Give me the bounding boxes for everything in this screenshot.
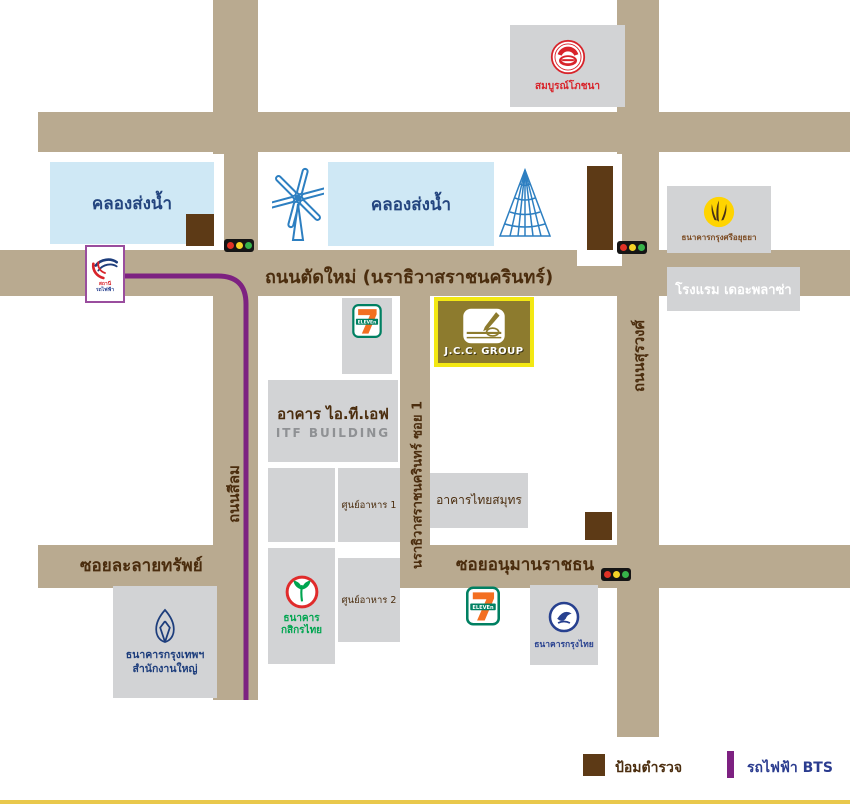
kbank-label-2: กสิกรไทย xyxy=(281,625,322,638)
thaisamut-label: อาคารไทยสมุทร xyxy=(436,491,522,510)
building-plaza-hotel: โรงแรม เดอะพลาซ่า xyxy=(667,267,800,311)
legend-bts-line-icon xyxy=(727,751,734,778)
building-foodcourt-2: ศูนย์อาหาร 2 xyxy=(338,558,400,642)
green-light-dot xyxy=(622,571,629,578)
seven-eleven-word-2: ELEVEn xyxy=(472,605,494,611)
windmill-icon xyxy=(272,160,324,246)
seven-eleven-word: ELEVEn xyxy=(358,320,376,326)
itf-label-en: ITF BUILDING xyxy=(276,426,390,440)
red-light-dot xyxy=(604,571,611,578)
traffic-light-anuman xyxy=(601,568,631,581)
legend-bts-label: รถไฟฟ้า BTS xyxy=(747,757,833,779)
foodcourt2-label: ศูนย์อาหาร 2 xyxy=(342,593,397,608)
bts-station-badge: สถานี รถไฟฟ้า xyxy=(85,245,125,303)
legend-police-box-icon xyxy=(583,754,605,776)
police-box-thaisamut xyxy=(585,512,612,540)
red-light-dot xyxy=(620,244,627,251)
traffic-light-surawong xyxy=(617,241,647,254)
bts-station-label-2: รถไฟฟ้า xyxy=(96,287,114,293)
jcc-group-label: J.C.C. GROUP xyxy=(444,346,523,357)
building-block-a xyxy=(268,468,335,542)
building-seven-eleven-north: ELEVEn xyxy=(342,298,392,374)
bbl-label-2: สำนักงานใหญ่ xyxy=(126,663,205,677)
building-itf: อาคาร ไอ.ที.เอฟ ITF BUILDING xyxy=(268,380,398,462)
foodcourt1-label: ศูนย์อาหาร 1 xyxy=(342,498,397,513)
surawong-road-label: ถนนสุรวงศ์ xyxy=(627,320,651,392)
yellow-light-dot xyxy=(236,242,243,249)
canal-center: คลองส่งน้ำ xyxy=(328,162,494,246)
building-bangkok-bank: ธนาคารกรุงเทพฯ สำนักงานใหญ่ xyxy=(113,586,217,698)
map-canvas: คลองส่งน้ำ คลองส่งน้ำ xyxy=(0,0,850,808)
somboon-label: สมบูรณ์โภชนา xyxy=(535,79,600,94)
bottom-accent-line xyxy=(0,800,850,804)
police-box-tall xyxy=(587,166,613,250)
silom-road-label: ถนนสีลม xyxy=(222,465,246,523)
building-thaisamut: อาคารไทยสมุทร xyxy=(430,473,528,528)
krungthai-logo-icon xyxy=(547,600,581,634)
jcc-logo-icon xyxy=(461,307,507,345)
soi-anuman-label: ซอยอนุมานราชธน xyxy=(456,551,594,578)
canal-west-label: คลองส่งน้ำ xyxy=(92,190,172,217)
traffic-light-silom xyxy=(224,239,254,252)
bts-logo-icon xyxy=(90,255,120,281)
building-jcc-group: J.C.C. GROUP xyxy=(434,297,534,367)
kbank-label-1: ธนาคาร xyxy=(281,613,322,626)
building-somboon: สมบูรณ์โภชนา xyxy=(510,25,625,107)
plaza-hotel-label: โรงแรม เดอะพลาซ่า xyxy=(675,279,791,300)
narathiwas-soi1-label: นราธิวาสราชนครินทร์ ซอย 1 xyxy=(407,401,428,569)
police-box-canal xyxy=(186,214,214,246)
kasikorn-logo-icon xyxy=(285,575,319,609)
road-silom xyxy=(213,0,258,700)
somboon-logo-icon xyxy=(550,39,586,75)
road-top-horizontal xyxy=(38,112,850,152)
seven-eleven-south-icon: ELEVEn xyxy=(466,586,500,626)
green-light-dot xyxy=(638,244,645,251)
legend-police-label: ป้อมตำรวจ xyxy=(615,757,682,779)
main-road-label: ถนนตัดใหม่ (นราธิวาสราชนครินทร์) xyxy=(265,262,553,291)
seven-eleven-icon: ELEVEn xyxy=(352,304,382,338)
krungsri-label: ธนาคารกรุงศรีอยุธยา xyxy=(682,231,757,244)
building-foodcourt-1: ศูนย์อาหาร 1 xyxy=(338,468,400,542)
bbl-label-1: ธนาคารกรุงเทพฯ xyxy=(126,649,205,663)
yellow-light-dot xyxy=(613,571,620,578)
bangkok-bank-logo-icon xyxy=(149,607,181,645)
red-light-dot xyxy=(227,242,234,249)
green-light-dot xyxy=(245,242,252,249)
ktb-label: ธนาคารกรุงไทย xyxy=(534,637,594,651)
soi-lalaisap-label: ซอยละลายทรัพย์ xyxy=(80,552,203,579)
building-krungthai-bank: ธนาคารกรุงไทย xyxy=(530,585,598,665)
canal-center-label: คลองส่งน้ำ xyxy=(371,191,451,218)
building-kasikorn-bank: ธนาคาร กสิกรไทย xyxy=(268,548,335,664)
krungsri-logo-icon xyxy=(703,196,735,228)
pyramid-icon xyxy=(496,166,554,244)
building-krungsri: ธนาคารกรุงศรีอยุธยา xyxy=(667,186,771,253)
yellow-light-dot xyxy=(629,244,636,251)
itf-label-thai: อาคาร ไอ.ที.เอฟ xyxy=(277,402,389,426)
